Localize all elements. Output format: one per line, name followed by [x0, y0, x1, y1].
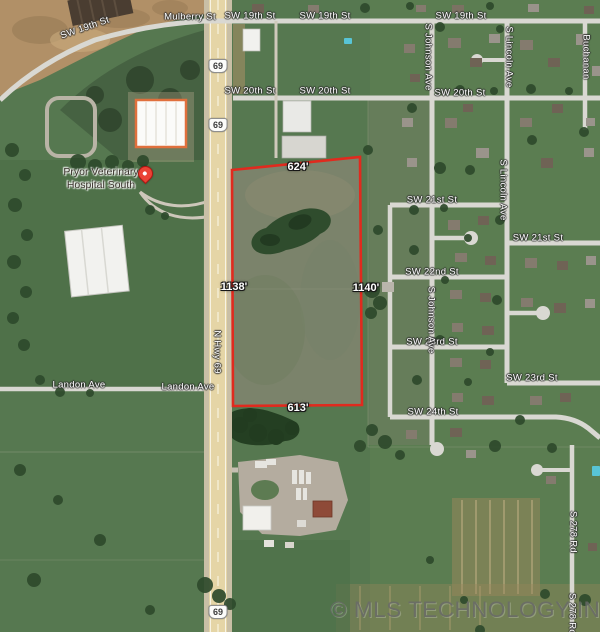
poi-label-line1: Pryor Veterinary [60, 166, 142, 179]
map-canvas[interactable]: SW 19th St Mulberry St SW 19th St SW 19t… [0, 0, 600, 632]
parcel-dim-bottom: 613' [288, 402, 309, 414]
poi-label-pryor-veterinary-hospital-south: Pryor Veterinary Hospital South [60, 166, 142, 191]
poi-label-line2: Hospital South [60, 179, 142, 192]
highway-69-shield-icon: 69 [209, 59, 228, 73]
mls-watermark: © MLS TECHNOLOGY INC 2025 [330, 597, 600, 623]
parcel-dim-top: 624' [288, 161, 309, 173]
parcel-dim-west: 1138' [221, 281, 247, 293]
satellite-imagery-layer [0, 0, 600, 632]
highway-69-shield-icon: 69 [209, 118, 228, 132]
highway-69-road [203, 0, 233, 632]
parcel-dim-east: 1140' [353, 282, 379, 294]
highway-69-shield-icon: 69 [209, 605, 228, 619]
